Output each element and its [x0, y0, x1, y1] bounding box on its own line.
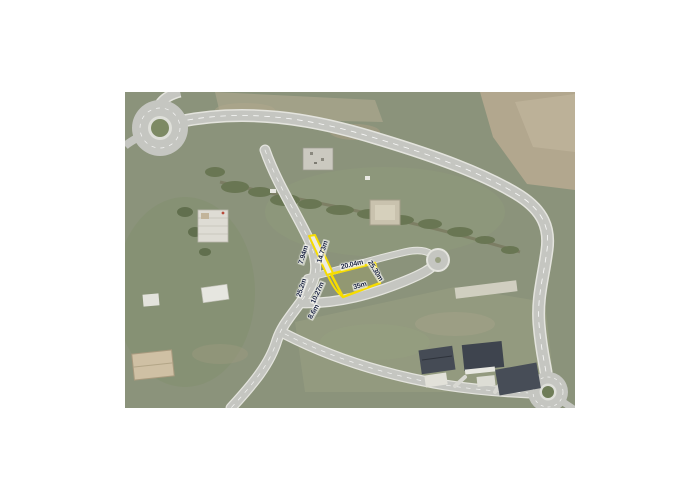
white-building — [201, 284, 229, 302]
tan-building — [132, 350, 174, 380]
small-white-building — [143, 293, 160, 306]
page-background: 7.94m 14.73m 25.2m 10.27m 8.6m 20.04m 35… — [0, 0, 700, 500]
cul-de-sac — [426, 248, 450, 272]
building-under-construction — [198, 210, 228, 242]
aerial-photo-art — [125, 92, 575, 408]
aerial-photo: 7.94m 14.73m 25.2m 10.27m 8.6m 20.04m 35… — [125, 92, 575, 408]
